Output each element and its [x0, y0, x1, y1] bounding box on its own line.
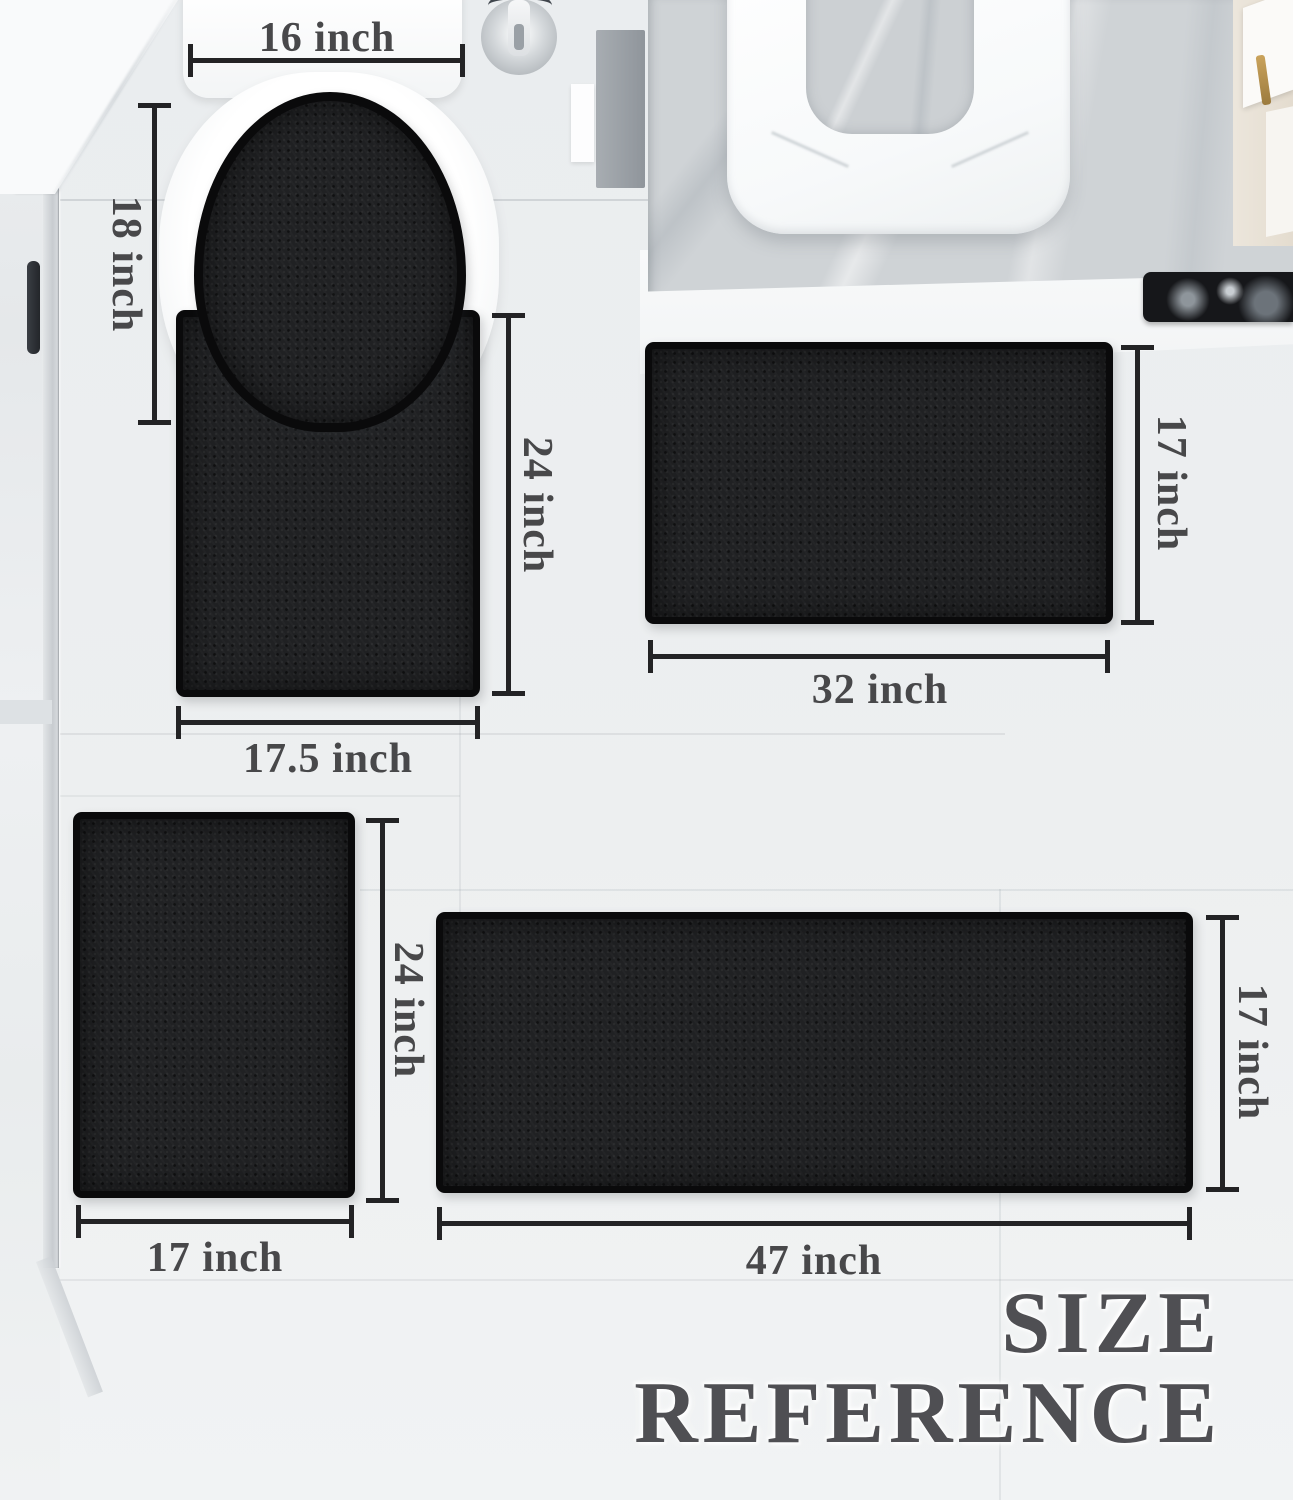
glass-support-bar	[0, 700, 52, 724]
paper-roll-core	[514, 24, 524, 50]
dark-stone-rug	[1143, 272, 1293, 322]
dim-line-runner-height	[1220, 915, 1225, 1192]
bathtub-basin-floor	[806, 0, 974, 134]
dim-line-small-width	[76, 1219, 354, 1224]
runner-mat-47x17	[436, 912, 1193, 1193]
label-contour-height: 24 inch	[513, 437, 561, 574]
title-line-2: REFERENCE	[634, 1369, 1222, 1460]
glass-frame-bar	[43, 86, 59, 1268]
cabinet-lower-panel	[1266, 106, 1293, 237]
label-lid-height: 18 inch	[102, 196, 150, 333]
dim-line-contour-width	[176, 720, 480, 725]
label-small-height: 24 inch	[384, 942, 432, 1079]
dim-line-contour-height	[506, 313, 511, 696]
dim-line-lid-height	[152, 103, 157, 425]
tile-seam	[459, 697, 461, 913]
mat-32x17	[645, 342, 1113, 624]
title-line-1: SIZE	[634, 1279, 1222, 1370]
tile-seam	[0, 733, 1005, 735]
tile-seam	[0, 795, 460, 797]
label-small-width: 17 inch	[147, 1234, 284, 1282]
shower-door-handle	[27, 261, 40, 354]
label-lid-width: 16 inch	[259, 14, 396, 62]
wall-panel	[571, 84, 594, 162]
label-medium-height: 17 inch	[1147, 415, 1195, 552]
label-medium-width: 32 inch	[812, 666, 949, 714]
label-contour-width: 17.5 inch	[243, 735, 413, 783]
dim-line-medium-height	[1135, 345, 1140, 625]
mat-17x24	[73, 812, 355, 1198]
size-reference-image: 16 inch 18 inch 24 inch 17.5 inch 17 inc…	[0, 0, 1293, 1500]
wall-shelf	[596, 30, 645, 188]
dim-line-runner-width	[437, 1221, 1192, 1226]
dim-line-medium-width	[648, 654, 1110, 659]
page-title: SIZE REFERENCE	[634, 1279, 1222, 1460]
tile-seam	[360, 889, 1293, 891]
label-runner-height: 17 inch	[1228, 984, 1276, 1121]
